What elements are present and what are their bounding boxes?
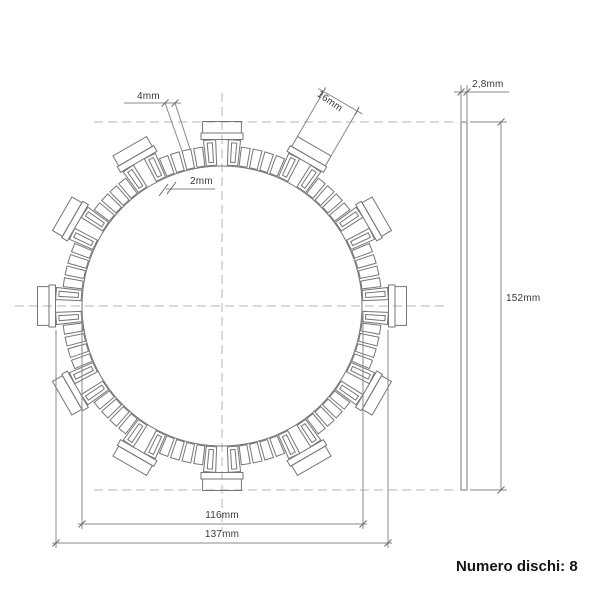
dim-label-inner-diameter: 116mm <box>202 510 242 521</box>
dim-label-tooth-width: 4mm <box>137 91 160 102</box>
dim-label-outer-diameter: 152mm <box>506 293 540 304</box>
dim-label-thickness: 2,8mm <box>472 79 504 90</box>
disc-count-caption: Numero dischi: 8 <box>456 558 596 575</box>
technical-drawing-page: 4mm 2mm 16mm 2,8mm 152mm 116mm 137mm Num… <box>0 0 600 600</box>
dim-label-tooth-gap: 2mm <box>190 176 213 187</box>
dim-label-base-diameter: 137mm <box>202 529 242 540</box>
